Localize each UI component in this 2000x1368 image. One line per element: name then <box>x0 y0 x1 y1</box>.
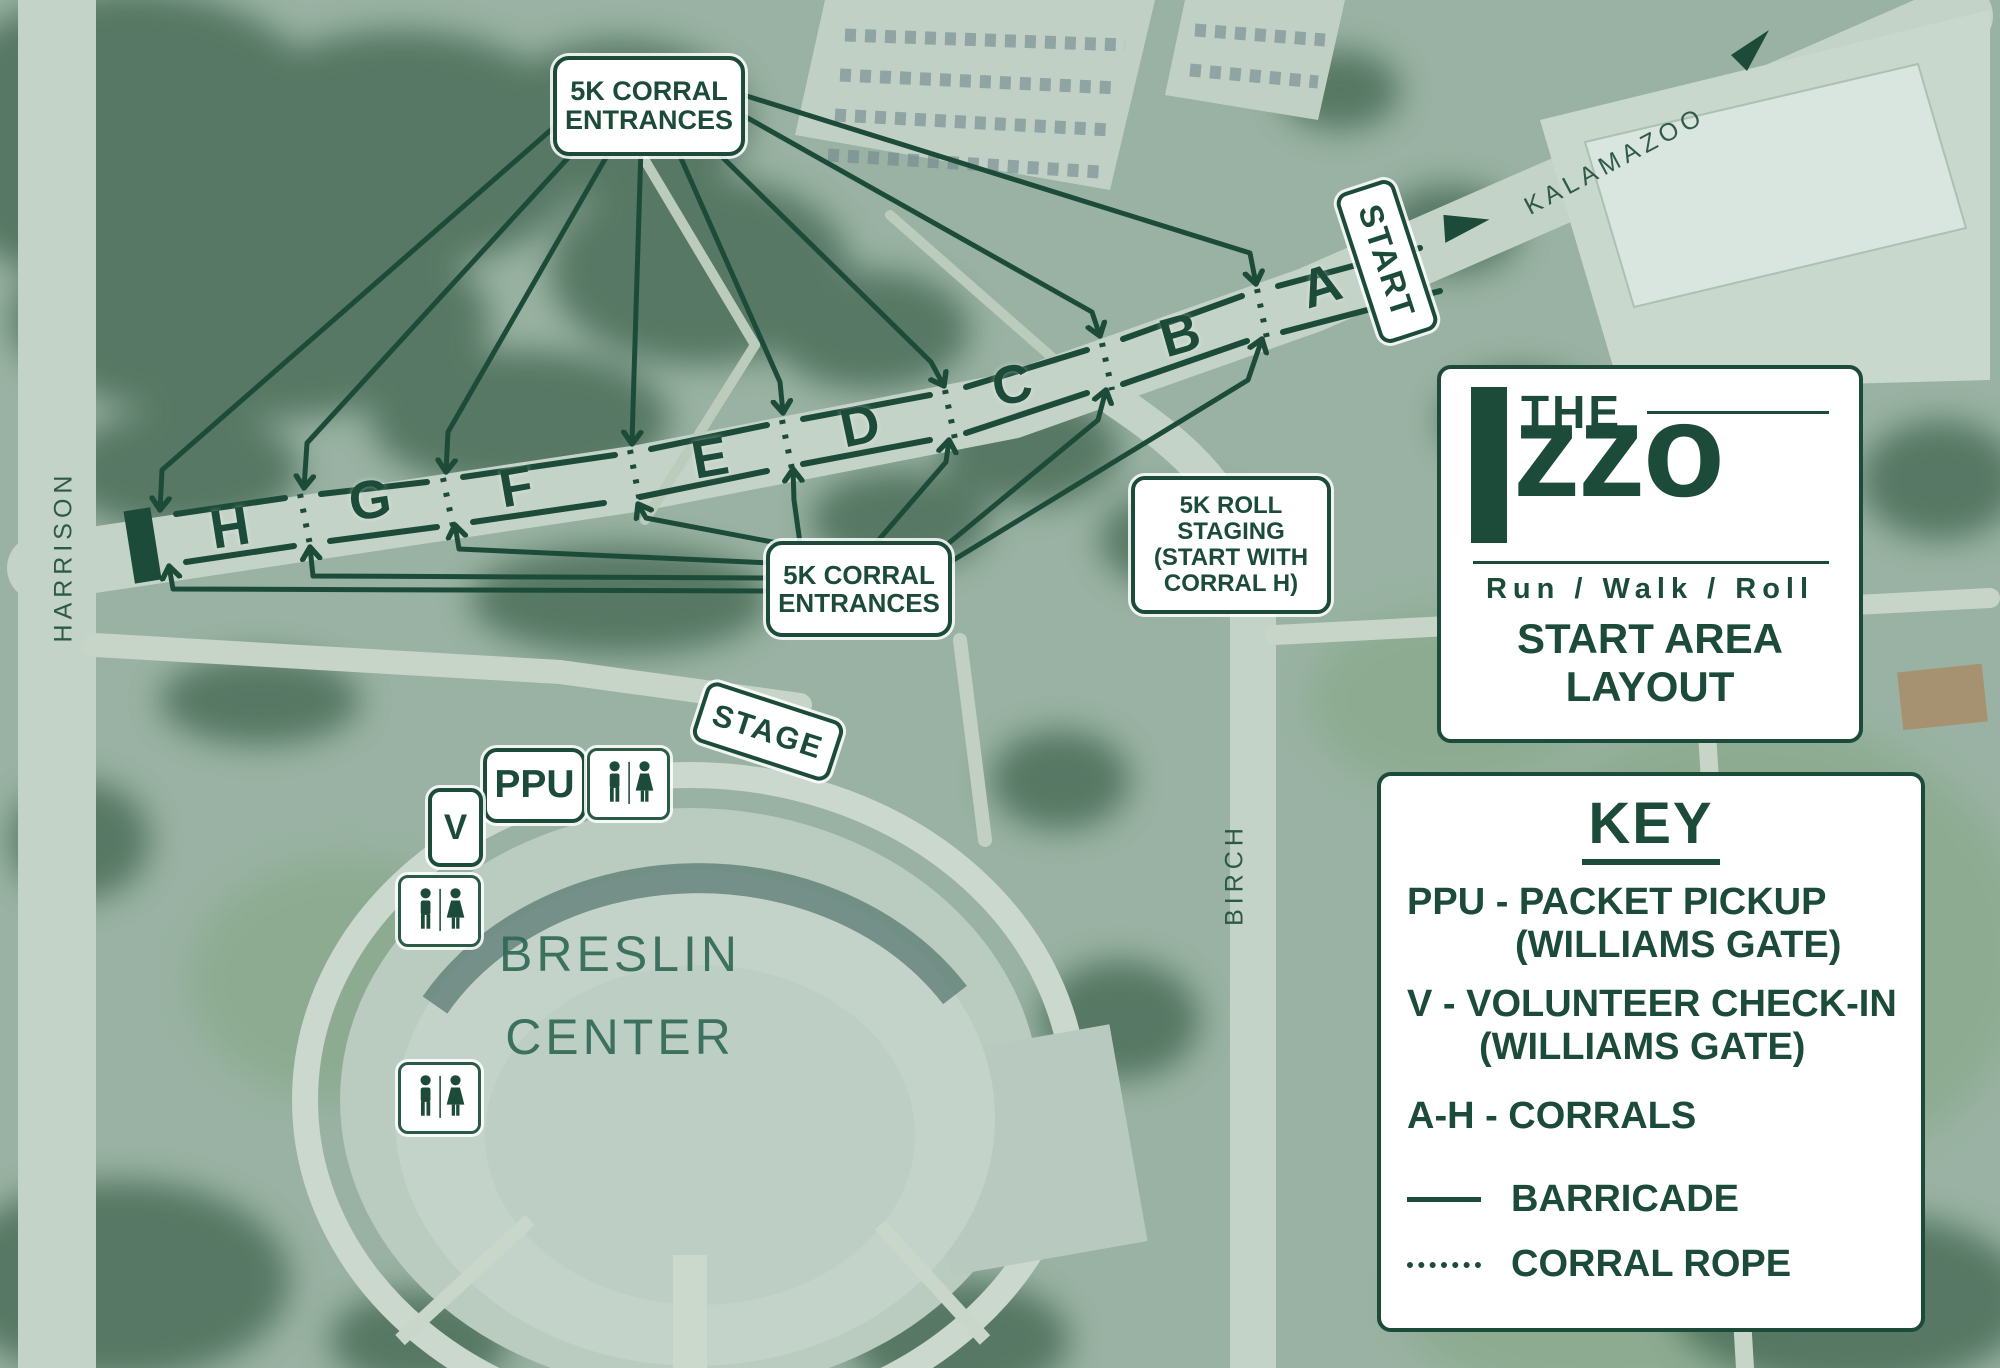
key-item-ppu: PPU - PACKET PICKUP <box>1407 881 1895 924</box>
restroom-icon <box>398 875 481 947</box>
legend-label: CORRAL ROPE <box>1511 1243 1791 1286</box>
breslin-center-name-line2: CENTER <box>398 1008 842 1066</box>
key-item-volunteer: V - VOLUNTEER CHECK-IN <box>1407 983 1895 1026</box>
label-text: ENTRANCES <box>770 589 948 617</box>
corral-entrances-label-top: 5K CORRAL ENTRANCES <box>553 56 745 156</box>
logo-decorative-underline <box>1473 561 1829 564</box>
label-text: PPU <box>487 764 582 806</box>
restroom-icon <box>398 1062 481 1134</box>
corral-letter-g: G <box>333 463 406 536</box>
logo-subtitle-line2: LAYOUT <box>1441 663 1859 711</box>
restroom-pictogram <box>409 1073 471 1123</box>
restroom-pictogram <box>409 886 471 936</box>
corral-letter-f: F <box>479 450 553 524</box>
key-item-volunteer-note: (WILLIAMS GATE) <box>1479 1026 1895 1069</box>
logo-subtitle-line1: START AREA <box>1441 615 1859 663</box>
label-text: 5K CORRAL <box>770 561 948 589</box>
packet-pickup-label: PPU <box>483 748 586 823</box>
restroom-pictogram <box>598 759 660 809</box>
street-name-harrison: HARRISON <box>50 443 79 671</box>
label-text: CORRAL H) <box>1135 571 1327 597</box>
corral-letter-d: D <box>822 388 898 464</box>
key-legend-corral-rope: CORRAL ROPE <box>1407 1243 1895 1286</box>
map-key-card: KEY PPU - PACKET PICKUP (WILLIAMS GATE) … <box>1377 772 1925 1332</box>
corral-entrances-label-bottom: 5K CORRAL ENTRANCES <box>766 541 952 637</box>
key-title: KEY <box>1582 790 1719 865</box>
logo-tagline: Run / Walk / Roll <box>1441 573 1859 606</box>
restroom-icon <box>587 748 670 820</box>
label-text: 5K ROLL <box>1135 493 1327 519</box>
corral-rope-line-symbol <box>1407 1262 1481 1268</box>
event-logo-card: THE zzo Run / Walk / Roll START AREA LAY… <box>1437 365 1863 743</box>
roll-staging-label: 5K ROLL STAGING (START WITH CORRAL H) <box>1131 476 1331 614</box>
volunteer-checkin-label: V <box>428 788 483 867</box>
legend-label: BARRICADE <box>1511 1178 1739 1221</box>
corral-letter-e: E <box>673 421 747 495</box>
label-text: (START WITH <box>1135 545 1327 571</box>
izzo-i-bar <box>1471 387 1507 543</box>
street-name-birch: BIRCH <box>1221 795 1250 955</box>
key-item-corrals: A-H - CORRALS <box>1407 1095 1895 1138</box>
izzo-wordmark: zzo <box>1513 341 1723 561</box>
barricade-line-symbol <box>1407 1197 1481 1202</box>
corral-letter-h: H <box>193 491 266 564</box>
key-item-ppu-note: (WILLIAMS GATE) <box>1515 924 1895 967</box>
label-text: 5K CORRAL <box>557 77 741 106</box>
label-text: ENTRANCES <box>557 106 741 135</box>
key-legend-barricade: BARRICADE <box>1407 1178 1895 1221</box>
label-text: STAGING <box>1135 519 1327 545</box>
label-text: V <box>432 809 479 847</box>
start-area-map: H G F E D C B A 5K CORRAL ENTRANCES 5K C… <box>0 0 2000 1368</box>
